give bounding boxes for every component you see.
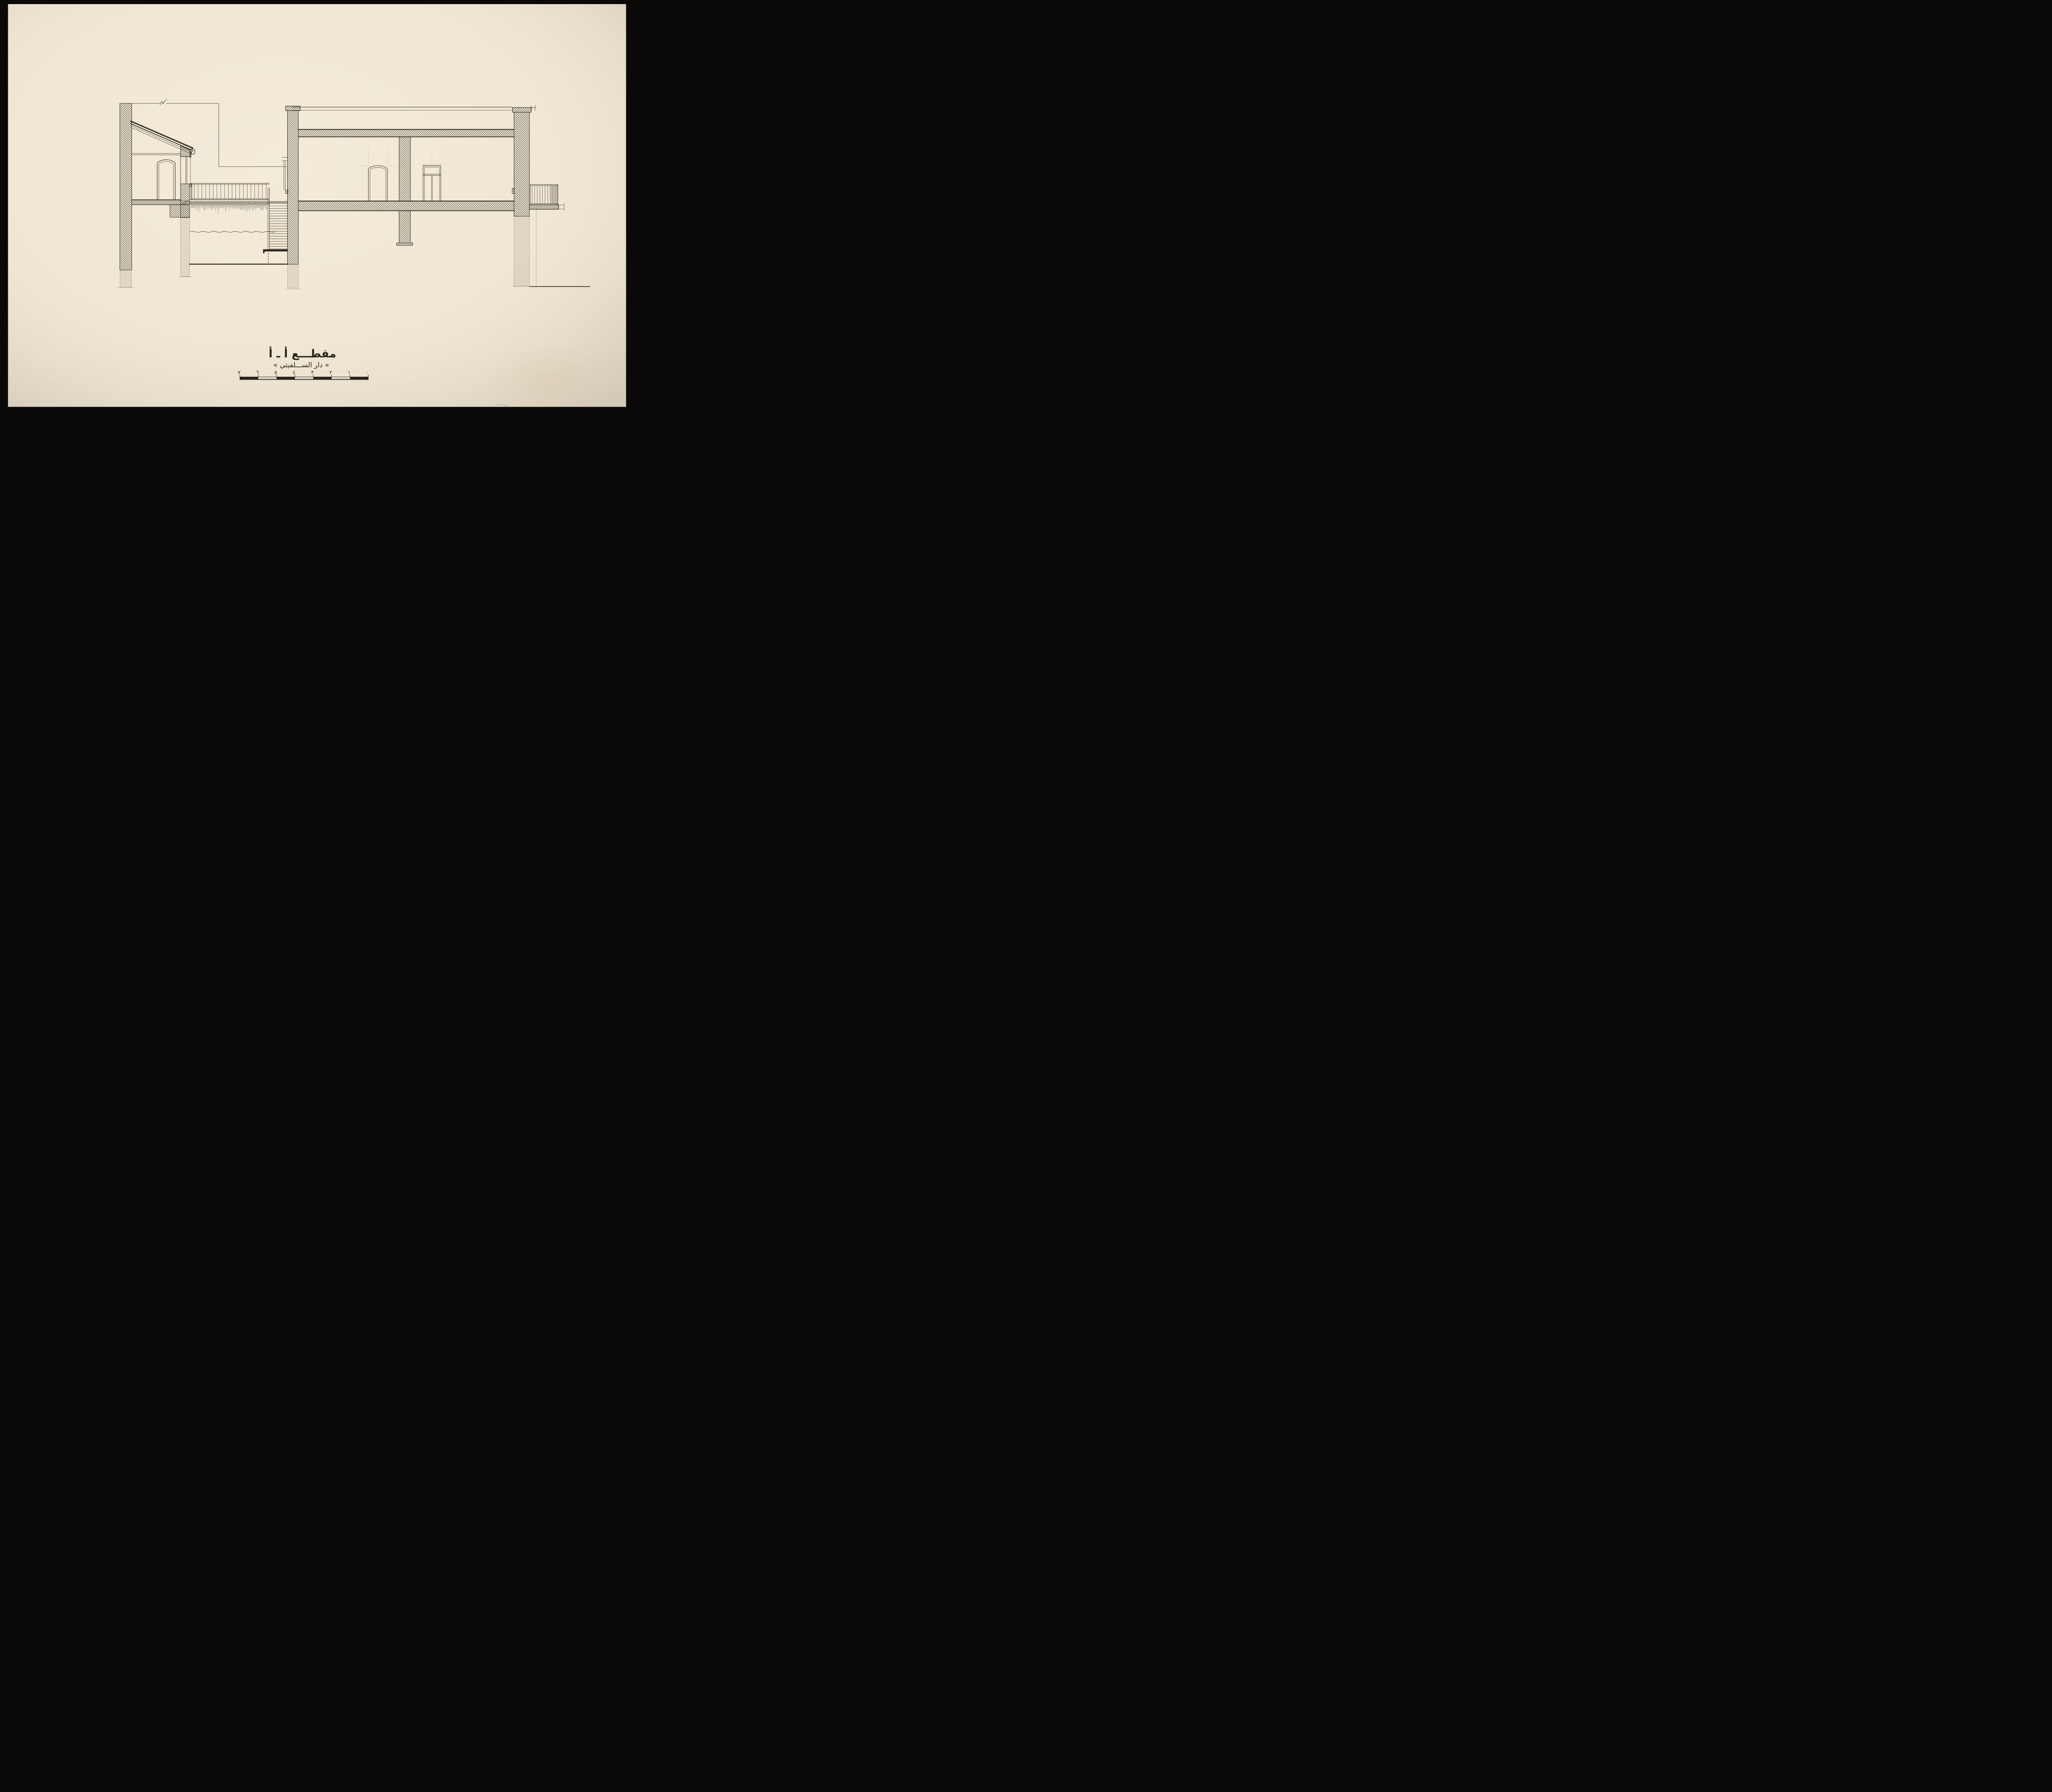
scale-label: ٤ (293, 370, 295, 375)
stair-landing (263, 249, 288, 252)
scale-label: ٣ (311, 370, 314, 375)
section-drawing: مقطـــع أ ـ أ « دار الســـلفيتي » ٧٦٥٤٣٢… (0, 0, 634, 412)
pier-foot (397, 243, 413, 245)
left-cut-wall (118, 103, 134, 288)
lower-pier (397, 211, 413, 246)
drawing-subtitle: « دار الســـلفيتي » (273, 361, 329, 369)
scale-label: ١ (348, 370, 350, 375)
landing-foot (263, 252, 265, 254)
parapet-coping (286, 106, 300, 111)
parapet-coping-right (513, 108, 531, 112)
scale-label: ٢ (330, 370, 332, 375)
balcony-door-sill (512, 188, 514, 194)
photographed-drawing-sheet: مقطـــع أ ـ أ « دار الســـلفيتي » ٧٦٥٤٣٢… (0, 0, 634, 412)
main-middle-wall (399, 137, 411, 201)
balcony-slab (529, 205, 559, 209)
scale-label: ٠ (366, 370, 369, 375)
scale-label: ٥ (275, 370, 277, 375)
main-right-wall (512, 108, 531, 286)
foundation-mass (170, 205, 190, 217)
scale-label: ٦ (256, 370, 259, 375)
window-sill-cap (286, 190, 288, 194)
drawing-title: مقطـــع أ ـ أ (269, 346, 337, 360)
main-floor-slab (298, 201, 514, 211)
scale-label: ٧ (238, 370, 240, 375)
roof-slab (298, 130, 514, 137)
paper-stain (484, 345, 607, 410)
